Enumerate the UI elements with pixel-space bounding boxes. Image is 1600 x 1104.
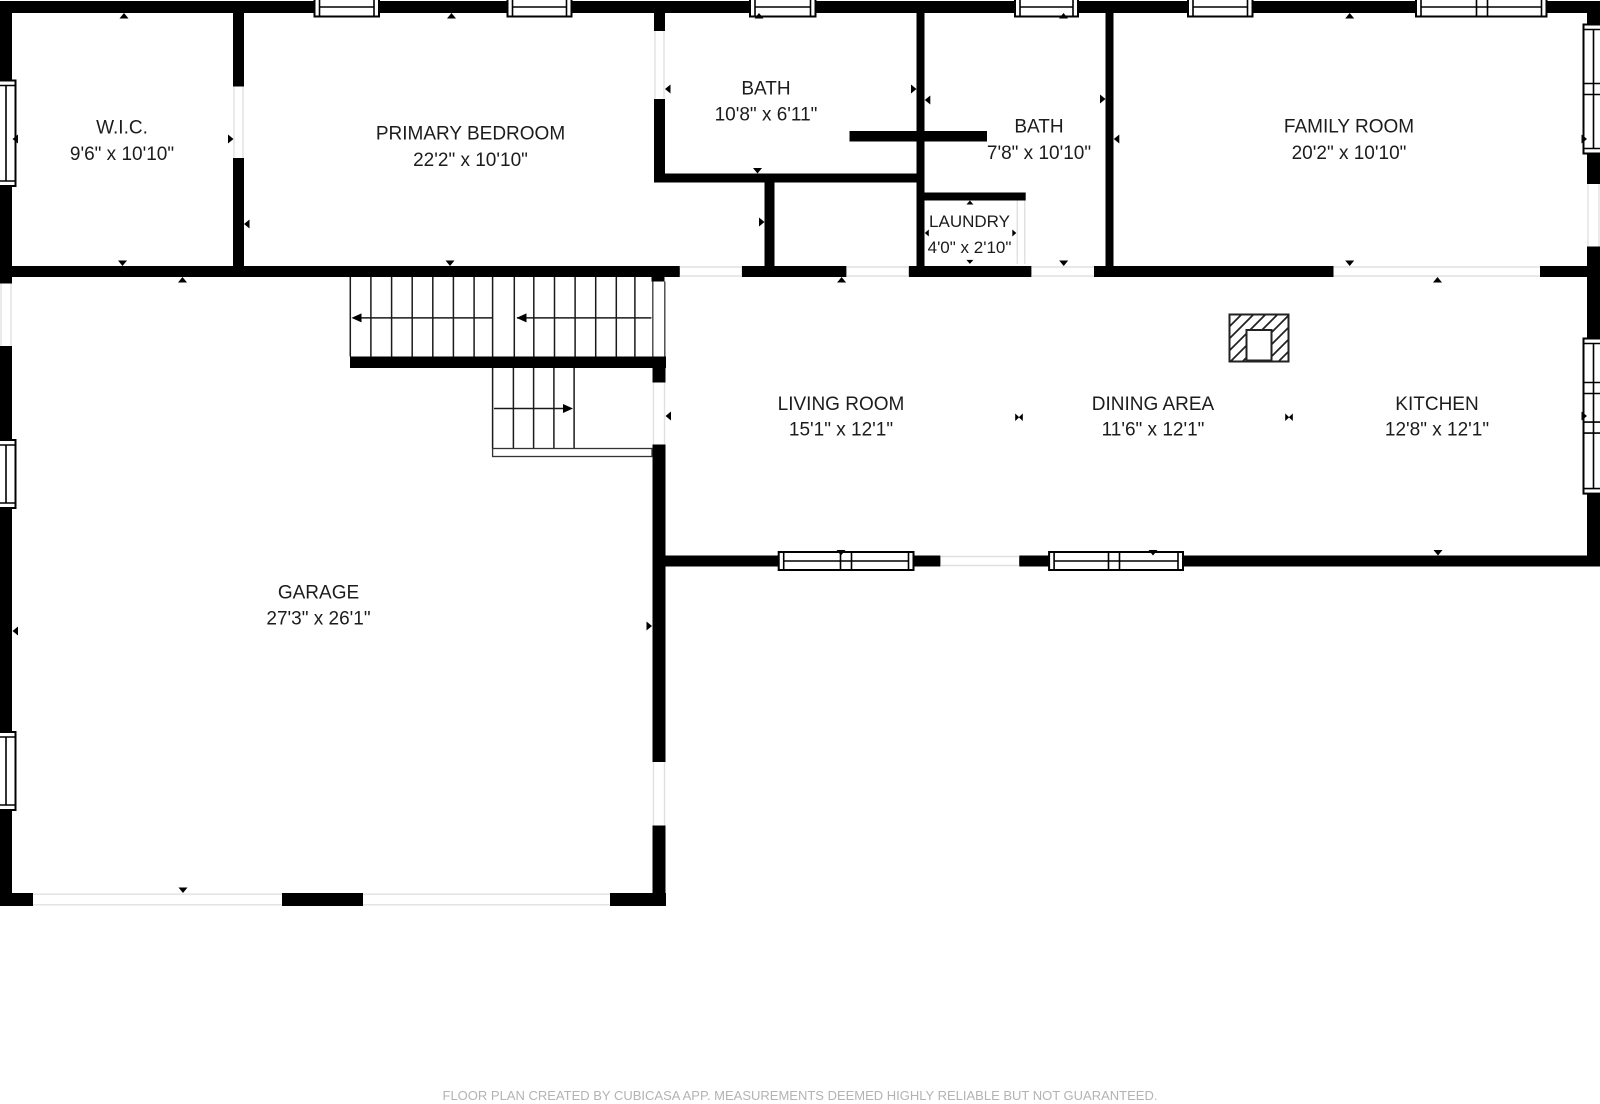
svg-text:4'0" x 2'10": 4'0" x 2'10" bbox=[928, 238, 1012, 257]
svg-text:10'8" x 6'11": 10'8" x 6'11" bbox=[715, 105, 818, 126]
svg-text:27'3" x 26'1": 27'3" x 26'1" bbox=[266, 609, 370, 630]
svg-text:LAUNDRY: LAUNDRY bbox=[929, 212, 1010, 231]
svg-text:BATH: BATH bbox=[741, 79, 790, 100]
svg-text:LIVING ROOM: LIVING ROOM bbox=[778, 394, 905, 415]
svg-text:20'2" x 10'10": 20'2" x 10'10" bbox=[1292, 143, 1407, 164]
svg-text:12'8" x 12'1": 12'8" x 12'1" bbox=[1385, 420, 1489, 441]
svg-text:BATH: BATH bbox=[1014, 117, 1063, 138]
svg-text:GARAGE: GARAGE bbox=[278, 583, 359, 604]
svg-text:DINING AREA: DINING AREA bbox=[1092, 394, 1215, 415]
svg-text:7'8" x 10'10": 7'8" x 10'10" bbox=[987, 143, 1091, 164]
svg-text:11'6" x 12'1": 11'6" x 12'1" bbox=[1102, 420, 1205, 441]
svg-text:FLOOR PLAN CREATED BY CUBICASA: FLOOR PLAN CREATED BY CUBICASA APP. MEAS… bbox=[443, 1088, 1158, 1103]
svg-text:KITCHEN: KITCHEN bbox=[1395, 394, 1478, 415]
svg-text:PRIMARY BEDROOM: PRIMARY BEDROOM bbox=[376, 124, 565, 145]
svg-text:22'2" x 10'10": 22'2" x 10'10" bbox=[413, 150, 528, 171]
svg-text:W.I.C.: W.I.C. bbox=[96, 118, 148, 139]
svg-text:15'1" x 12'1": 15'1" x 12'1" bbox=[789, 420, 893, 441]
svg-text:9'6" x 10'10": 9'6" x 10'10" bbox=[70, 144, 174, 165]
svg-text:FAMILY ROOM: FAMILY ROOM bbox=[1284, 117, 1414, 138]
